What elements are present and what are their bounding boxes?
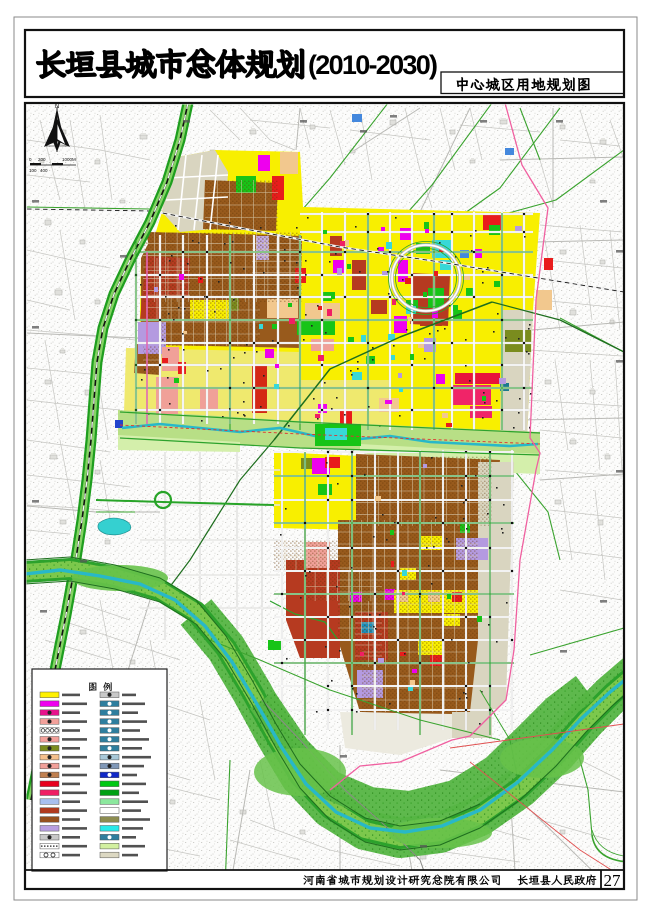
svg-text:100: 100	[29, 168, 37, 173]
svg-text:200: 200	[38, 157, 46, 162]
svg-text:1000M: 1000M	[62, 157, 76, 162]
svg-text:27: 27	[604, 871, 622, 890]
svg-text:(2010-2030): (2010-2030)	[308, 50, 438, 80]
svg-text:N: N	[55, 104, 59, 110]
svg-text:400: 400	[40, 168, 48, 173]
